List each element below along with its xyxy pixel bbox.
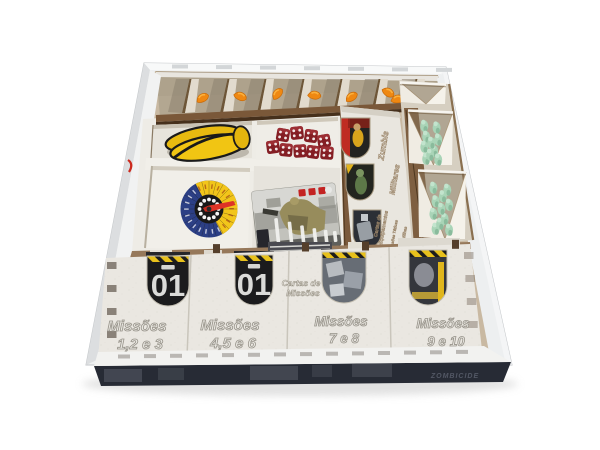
svg-text:ZOMBICIDE: ZOMBICIDE bbox=[430, 373, 479, 380]
svg-text:4,5 e 6: 4,5 e 6 bbox=[209, 335, 257, 352]
svg-text:Missões: Missões bbox=[200, 317, 259, 334]
svg-text:Missões: Missões bbox=[286, 288, 320, 298]
svg-text:01: 01 bbox=[151, 268, 185, 303]
svg-text:Missões: Missões bbox=[314, 314, 368, 329]
svg-text:01: 01 bbox=[237, 267, 271, 302]
svg-text:Cartas de: Cartas de bbox=[282, 278, 321, 288]
svg-text:Missões: Missões bbox=[107, 318, 166, 335]
svg-text:1,2 e 3: 1,2 e 3 bbox=[117, 336, 164, 353]
svg-text:7 e 8: 7 e 8 bbox=[329, 331, 360, 346]
svg-text:Missões: Missões bbox=[416, 316, 470, 331]
